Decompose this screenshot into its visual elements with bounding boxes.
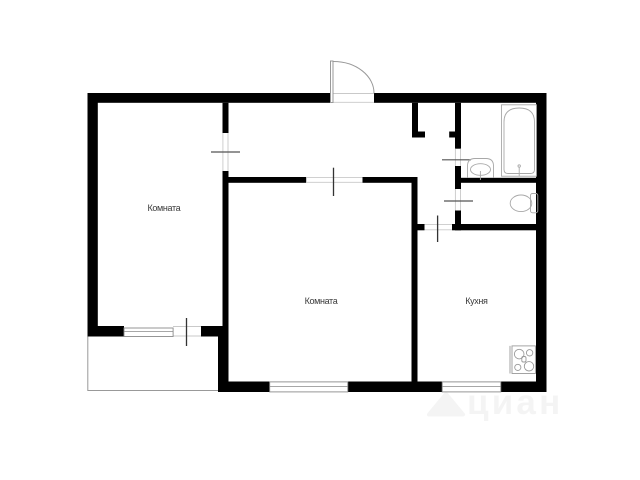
svg-text:Комната: Комната (305, 296, 338, 306)
svg-text:Комната: Комната (148, 203, 181, 213)
svg-text:Кухня: Кухня (465, 296, 488, 306)
